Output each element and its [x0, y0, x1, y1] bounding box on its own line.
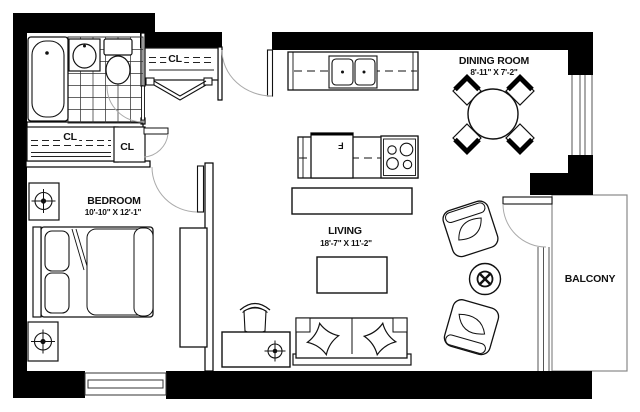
nightstand-lamp-bottom — [28, 322, 58, 361]
kitchen — [288, 52, 418, 214]
wall-balcony-top — [530, 173, 593, 195]
bathroom-door-leaf — [142, 86, 145, 120]
living-room-dims: 18'-7" X 11'-2" — [320, 239, 372, 247]
entry-door-leaf — [268, 50, 273, 96]
bathroom-door-swing — [107, 86, 143, 122]
dining-room-label: DINING ROOM — [459, 56, 529, 67]
balcony-door — [503, 197, 552, 247]
fridge — [311, 133, 353, 178]
bedroom-door-swing — [152, 167, 197, 212]
bedroom-dims: 10'-10" X 12'-1" — [85, 208, 142, 216]
dresser — [180, 228, 207, 347]
headboard — [33, 227, 41, 317]
bathroom — [28, 37, 145, 123]
wall-hall-closet-right — [218, 47, 222, 100]
small-closet-label: CL — [118, 142, 136, 153]
wall-bottom-main — [166, 371, 592, 399]
duvet-fold — [134, 228, 153, 316]
dining-set — [453, 77, 534, 152]
bedroom-door-leaf — [198, 166, 204, 212]
bathroom-sink — [69, 39, 100, 71]
toilet — [104, 39, 132, 84]
window-dining — [571, 75, 593, 155]
window-wall-balcony — [538, 247, 549, 371]
wall-bottom-left — [13, 371, 85, 398]
bathroom-door — [107, 86, 145, 122]
wall-left — [13, 13, 27, 398]
wide-closet-label: CL — [61, 132, 79, 143]
bedroom-label: BEDROOM — [87, 196, 140, 207]
wall-top-step — [140, 32, 222, 48]
wall-top-left — [13, 13, 155, 33]
balcony-door-leaf — [503, 197, 552, 204]
dining-room-dims: 8'-11" X 7'-2" — [470, 68, 517, 76]
burner — [388, 146, 396, 154]
burner — [403, 160, 411, 168]
kitchen-island — [292, 188, 412, 214]
double-sink — [329, 56, 377, 88]
pillow — [45, 231, 69, 271]
small-closet-door-swing — [144, 134, 168, 157]
sofa-armrest — [393, 318, 407, 332]
bifold-doors — [146, 78, 212, 100]
sofa-armrest — [296, 318, 310, 332]
window-bottom — [85, 373, 166, 395]
armchair-bottom — [442, 298, 500, 357]
tub-drain — [45, 51, 49, 55]
fridge-label: F — [338, 141, 343, 150]
balcony-door-swing — [503, 204, 546, 247]
living-room-label: LIVING — [328, 226, 362, 237]
desk-chair — [240, 304, 270, 334]
wall-right-top — [568, 33, 593, 75]
kitchen-sink-counter — [288, 52, 418, 90]
balcony-label: BALCONY — [565, 274, 616, 285]
entry-door-swing — [222, 50, 272, 96]
hall-closet-label: CL — [166, 54, 184, 65]
nightstand-lamp-top — [29, 183, 59, 220]
dining-table — [468, 89, 518, 139]
stove — [381, 136, 418, 178]
wall-top-right — [272, 32, 593, 50]
burner — [400, 143, 413, 156]
burner — [387, 158, 399, 170]
coffee-table — [317, 257, 387, 293]
kitchen-appliance-counter — [298, 133, 418, 178]
small-closet-door-leaf — [144, 128, 168, 134]
bedroom-door — [152, 166, 204, 212]
sink-faucet — [83, 45, 86, 48]
bed — [33, 227, 153, 317]
bathtub — [28, 37, 68, 121]
sofa — [293, 318, 411, 365]
armchair-top — [441, 199, 501, 259]
pillow — [45, 273, 69, 313]
floor-plan: DINING ROOM 8'-11" X 7'-2" BEDROOM 10'-1… — [0, 0, 640, 412]
round-side-table — [470, 264, 501, 295]
entry-door — [222, 50, 273, 96]
desk-area — [222, 304, 290, 368]
